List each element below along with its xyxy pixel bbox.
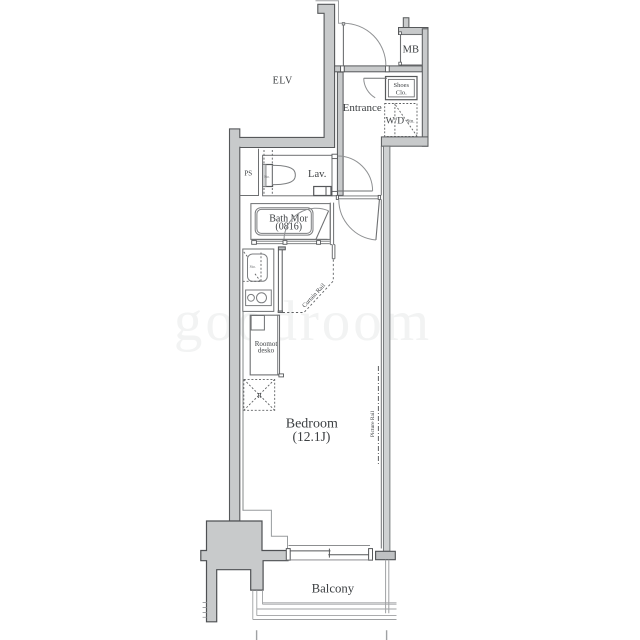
svg-text:PS: PS bbox=[244, 170, 252, 178]
svg-text:Sto.: Sto. bbox=[250, 264, 256, 269]
svg-text:Clo.: Clo. bbox=[396, 89, 407, 96]
svg-text:Shoes: Shoes bbox=[394, 82, 410, 89]
svg-text:MB: MB bbox=[403, 45, 419, 56]
svg-text:Balcony: Balcony bbox=[312, 581, 355, 595]
svg-text:Picture Rail: Picture Rail bbox=[370, 410, 376, 437]
svg-text:W/D: W/D bbox=[386, 117, 405, 127]
svg-text:Lav.: Lav. bbox=[308, 169, 326, 180]
svg-text:(12.1J): (12.1J) bbox=[292, 429, 330, 444]
svg-text:ELV: ELV bbox=[273, 76, 293, 87]
svg-text:desko: desko bbox=[258, 346, 275, 354]
svg-text:goodroom: goodroom bbox=[174, 290, 432, 353]
svg-text:R: R bbox=[257, 393, 262, 400]
svg-text:Sto.: Sto. bbox=[407, 119, 415, 124]
svg-text:Sto.: Sto. bbox=[264, 175, 270, 179]
svg-text:Entrance: Entrance bbox=[343, 102, 382, 114]
